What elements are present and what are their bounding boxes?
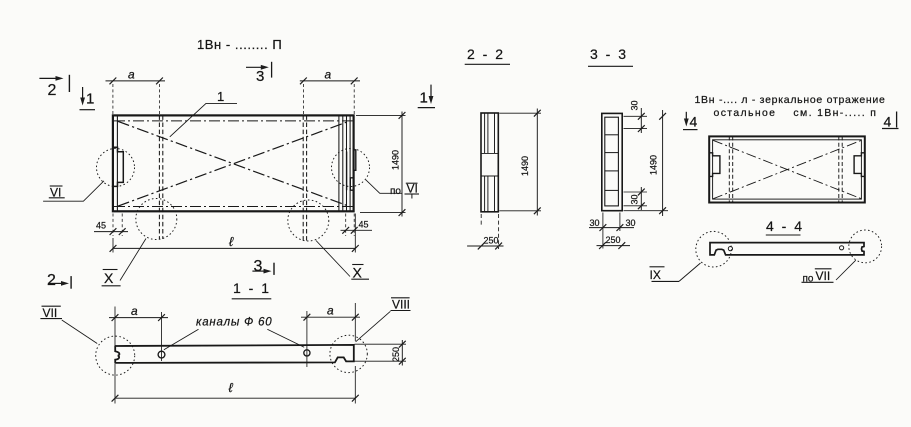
svg-text:VIII: VIII — [392, 298, 410, 312]
svg-text:4: 4 — [690, 114, 698, 130]
svg-text:3: 3 — [256, 68, 264, 85]
svg-text:4 - 4: 4 - 4 — [766, 218, 804, 234]
svg-text:VII: VII — [816, 269, 831, 283]
svg-text:1Вн - ........ П: 1Вн - ........ П — [197, 37, 282, 52]
svg-text:a: a — [327, 304, 334, 318]
svg-text:30: 30 — [630, 100, 640, 110]
svg-text:a: a — [128, 68, 135, 82]
svg-text:каналы Ф 60: каналы Ф 60 — [196, 317, 273, 329]
svg-text:30: 30 — [630, 194, 640, 204]
svg-text:X: X — [353, 265, 363, 281]
svg-text:3: 3 — [254, 258, 263, 275]
svg-text:3 - 3: 3 - 3 — [590, 46, 628, 62]
svg-text:остальное см. 1Вн-..... п: остальное см. 1Вн-..... п — [714, 107, 878, 119]
svg-text:1490: 1490 — [391, 150, 401, 170]
svg-text:IX: IX — [650, 268, 661, 282]
svg-text:250: 250 — [606, 235, 621, 245]
svg-text:2: 2 — [47, 272, 56, 289]
svg-text:250: 250 — [391, 347, 401, 362]
svg-text:30: 30 — [590, 218, 600, 228]
svg-text:250: 250 — [484, 236, 499, 246]
svg-text:2: 2 — [48, 82, 57, 99]
svg-text:1: 1 — [217, 89, 224, 104]
svg-text:a: a — [325, 68, 332, 82]
svg-text:1Вн -.... л - зеркальное отра: 1Вн -.... л - зеркальное отражение — [695, 94, 886, 106]
svg-text:a: a — [131, 304, 138, 318]
svg-text:1490: 1490 — [649, 155, 659, 175]
svg-text:2 - 2: 2 - 2 — [467, 46, 505, 62]
svg-text:по: по — [390, 186, 401, 197]
svg-text:45: 45 — [96, 221, 106, 231]
svg-text:VII: VII — [43, 306, 58, 320]
svg-text:1: 1 — [86, 91, 94, 108]
svg-text:1: 1 — [420, 90, 428, 107]
svg-text:по: по — [803, 274, 814, 285]
svg-text:45: 45 — [359, 220, 369, 230]
svg-text:1490: 1490 — [520, 156, 530, 176]
svg-text:4: 4 — [884, 114, 892, 130]
svg-text:X: X — [104, 270, 114, 286]
svg-text:VI: VI — [407, 182, 418, 196]
svg-text:1 - 1: 1 - 1 — [233, 280, 271, 296]
svg-text:30: 30 — [626, 218, 636, 228]
